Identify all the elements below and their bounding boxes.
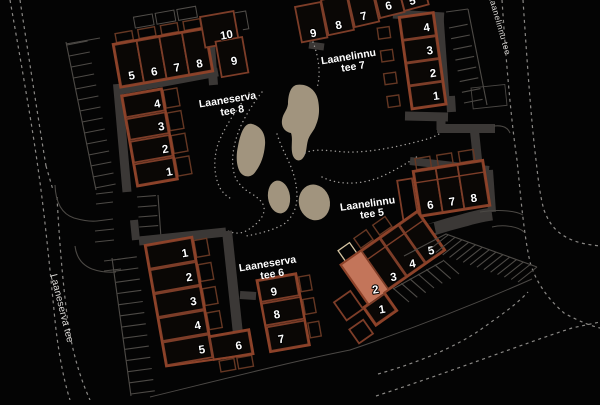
- svg-text:10: 10: [219, 29, 234, 43]
